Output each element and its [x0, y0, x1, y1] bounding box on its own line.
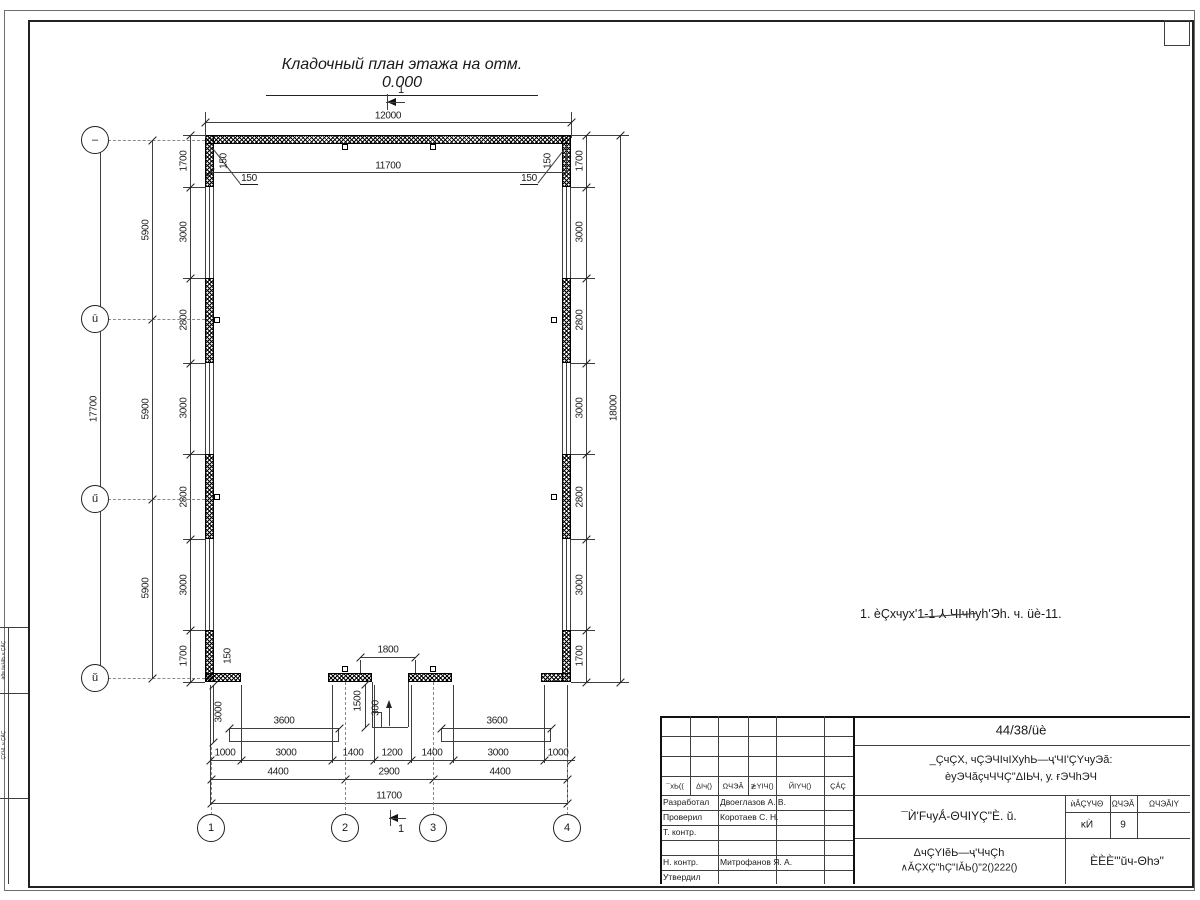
drawing-line-v [210, 144, 211, 172]
axis-bubble: 1 [197, 814, 225, 842]
dimension-label: 1200 [381, 748, 402, 759]
window-line [213, 187, 214, 278]
drawing-line-h [0, 627, 28, 628]
dimension-label: 150 [223, 648, 234, 664]
titleblock-caption-line2: ∧ǍÇXÇ"hÇ"ΙǍЬ()"2()222() [901, 863, 1018, 874]
role-label: Утвердил [663, 872, 701, 882]
wall-segment [562, 454, 571, 539]
vent-square [214, 494, 220, 500]
dimension-label: 3000 [575, 574, 586, 595]
dimension-label: 3000 [575, 221, 586, 242]
window-line [205, 363, 206, 454]
window-line [566, 539, 567, 630]
drawing-line-h [389, 818, 406, 819]
drawing-line-h [183, 278, 205, 279]
drawing-line-v [853, 716, 855, 884]
outline-rect [229, 728, 339, 742]
window-line [562, 187, 563, 278]
drawing-line-h [183, 539, 205, 540]
dimension-label: 2800 [179, 486, 190, 507]
role-name: Коротаев С. Н. [720, 812, 778, 822]
window-line [570, 187, 571, 278]
dimension-label: 3000 [179, 221, 190, 242]
dimension-label: 4400 [267, 767, 288, 778]
drawing-line-v [586, 135, 587, 682]
dimension-label: 1000 [214, 748, 235, 759]
vent-square [214, 317, 220, 323]
drawing-line-h [853, 745, 1190, 746]
drawing-line-v [152, 140, 153, 678]
drawing-line-v [408, 682, 409, 727]
dimension-label: 150 [520, 173, 538, 185]
dimension-label: 2800 [575, 309, 586, 330]
drawing-line-h [571, 278, 595, 279]
dimension-label: 3000 [179, 397, 190, 418]
dimension-label: 5900 [141, 398, 152, 419]
dimension-label: 3600 [486, 716, 507, 727]
section-label-top: 1 [398, 84, 404, 96]
window-line [570, 539, 571, 630]
titleblock-sheets-header: ΩЧЭǍΙΥ [1149, 800, 1179, 809]
window-line [562, 363, 563, 454]
dimension-label: 11700 [376, 791, 402, 802]
titleblock-doc-number: 44/38/üè [996, 723, 1047, 738]
dimension-label: 1500 [353, 690, 364, 711]
drawing-line-v [411, 685, 412, 763]
dimension-label: 3000 [179, 574, 190, 595]
role-name: Митрофанов Я. А. [720, 857, 792, 867]
wall-segment [205, 135, 571, 144]
drawing-line-h [0, 693, 28, 694]
dimension-label: 12000 [375, 111, 401, 122]
wall-segment [205, 278, 214, 363]
drawing-line-v [690, 716, 691, 795]
drawing-line-h [183, 454, 205, 455]
axis-bubble: 3 [419, 814, 447, 842]
window-line [209, 363, 210, 454]
dimension-label: 3600 [273, 716, 294, 727]
dimension-label: 2800 [575, 486, 586, 507]
titleblock-col-koluch: ΔΙч() [696, 782, 712, 791]
drawing-line-h [210, 760, 575, 761]
wall-segment [205, 454, 214, 539]
drawing-line-h [211, 779, 567, 780]
window-line [566, 363, 567, 454]
drawing-line-v [748, 716, 749, 795]
axis-bubble: ū [81, 305, 109, 333]
role-name: Двоеглазов А. В. [720, 797, 786, 807]
titleblock-sheet-header: ΩЧЭǍ [1112, 800, 1134, 809]
axis-bubble: ŭ [81, 664, 109, 692]
dimension-label: 3000 [214, 701, 225, 722]
titleblock-drawing-title: ¯Ѝ'FчуǺ-ΘЧΙΥÇ"È. ŭ. [901, 809, 1016, 823]
axis-bubble: ű [81, 485, 109, 513]
window-line [205, 539, 206, 630]
drawing-line-v [100, 140, 101, 678]
role-label: Т. контр. [663, 827, 696, 837]
drawing-line-h [108, 319, 205, 320]
drawing-line-h [108, 678, 205, 679]
role-label: Н. контр. [663, 857, 698, 867]
window-line [209, 539, 210, 630]
drawing-line-h [108, 140, 205, 141]
drawing-line-v [620, 135, 621, 682]
margin-stamp-text: ÇΥЧΙ. ч ÇÀÇ [1, 731, 7, 760]
dimension-label: 4400 [489, 767, 510, 778]
section-label-bottom: 1 [398, 823, 404, 835]
drawing-line-h [660, 716, 1190, 718]
dimension-label: 18000 [609, 395, 620, 421]
drawing-line-h [360, 657, 415, 658]
role-label: Проверил [663, 812, 702, 822]
dimension-label: 2800 [179, 309, 190, 330]
dimension-label: 5900 [141, 577, 152, 598]
titleblock-col-izm: ¯хЬ(( [666, 782, 684, 791]
vent-square [551, 317, 557, 323]
dimension-label: 17700 [89, 396, 100, 422]
drawing-line-h [108, 499, 205, 500]
drawing-line-h [205, 122, 571, 123]
role-label: Разработал [663, 797, 709, 807]
dimension-label: 150 [240, 173, 258, 185]
drawing-sheet: Кладочный план этажа на отм. 0.000 1. èÇ… [0, 0, 1200, 900]
outline-rect [1164, 20, 1190, 46]
titleblock-caption-line1: ΔчÇΥΙĕЬ—ҷ'ЧчÇh [914, 847, 1005, 859]
titleblock-organization: ÈÈÈ'"ŭч-Θhэ" [1090, 854, 1164, 868]
titleblock-col-podp: ЙΙΥЧ() [789, 782, 811, 791]
drawing-line-h [571, 539, 595, 540]
wall-segment [205, 673, 241, 682]
drawing-line-v [544, 685, 545, 763]
wall-segment [408, 673, 452, 682]
drawing-line-v [824, 716, 825, 884]
dimension-label: 1400 [421, 748, 442, 759]
drawing-line-v [566, 144, 567, 172]
dimension-label: 1800 [377, 645, 398, 656]
vent-square [551, 494, 557, 500]
drawing-line-v [718, 716, 719, 884]
drawing-line-v [389, 708, 390, 726]
dimension-label: 11700 [375, 161, 401, 172]
drawing-line-v [1137, 795, 1138, 838]
margin-stamp-text: ѝθʙ №ЧΙЬ ч ÇÀÇ [1, 641, 7, 680]
drawing-line-v [660, 716, 662, 884]
titleblock-stage-header: ѝǍÇΥЧΘ [1071, 800, 1103, 809]
dimension-label: 300 [371, 700, 382, 716]
window-line [209, 187, 210, 278]
wall-segment [541, 673, 571, 682]
drawing-line-h [372, 727, 408, 728]
dimension-label: 1700 [575, 645, 586, 666]
drawing-line-v [332, 685, 333, 763]
dimension-label: 3000 [275, 748, 296, 759]
window-line [213, 539, 214, 630]
window-line [570, 363, 571, 454]
titleblock-col-list: ΩЧЭǍ [723, 782, 744, 791]
drawing-line-h [571, 187, 595, 188]
titleblock-col-dok: ≵ΥΙЧ() [750, 782, 773, 791]
titleblock-project-line2: èуЭЧăçчЧЧÇ"ΔΙЬЧ, у. ғЭЧhЭЧ [945, 771, 1097, 783]
window-line [213, 363, 214, 454]
drawing-line-v [360, 660, 361, 673]
dimension-label: 5900 [141, 219, 152, 240]
vent-square [430, 144, 436, 150]
drawing-line-h [386, 102, 405, 103]
window-line [566, 187, 567, 278]
axis-bubble: 4 [553, 814, 581, 842]
drawing-line-v [453, 685, 454, 763]
dimension-label: 1700 [179, 150, 190, 171]
drawing-line-h [571, 363, 595, 364]
drawing-line-h [571, 454, 595, 455]
titleblock-project-line1: _ÇчÇХ, чÇЭЧΙчΙХуhЬ—ҷ'ЧΙ'ÇΥчуЭă: [930, 754, 1113, 766]
vent-square [342, 666, 348, 672]
drawing-line-h [571, 630, 595, 631]
window-line [562, 539, 563, 630]
titleblock-stage-value: ĸЍ [1081, 820, 1093, 831]
dimension-label: 1700 [179, 645, 190, 666]
drawing-line-v [8, 627, 9, 884]
drawing-line-v [205, 112, 206, 138]
dimension-label: 3000 [487, 748, 508, 759]
drawing-line-v [374, 685, 375, 763]
drawing-line-v [1065, 795, 1066, 884]
drawing-line-v [390, 810, 391, 826]
drawing-line-h [183, 363, 205, 364]
dimension-label: 1400 [342, 748, 363, 759]
dimension-label: 1000 [547, 748, 568, 759]
axis-bubble: – [81, 126, 109, 154]
drawing-line-v [190, 135, 191, 682]
drawing-line-v [241, 685, 242, 763]
dimension-label: 2900 [378, 767, 399, 778]
drawing-line-h [210, 172, 566, 173]
drawing-line-h [183, 682, 205, 683]
drawing-line-h [183, 135, 205, 136]
entrance-arrow-icon [386, 700, 392, 708]
drawing-line-v [387, 94, 388, 110]
drawing-line-h [183, 187, 205, 188]
drawing-line-h [183, 630, 205, 631]
drawing-line-h [211, 803, 567, 804]
vent-square [342, 144, 348, 150]
window-line [205, 187, 206, 278]
wall-segment [328, 673, 372, 682]
drawing-line-h [1065, 812, 1190, 813]
dimension-label: 1700 [575, 150, 586, 171]
vent-square [430, 666, 436, 672]
axis-bubble: 2 [331, 814, 359, 842]
dimension-label: 150 [219, 153, 230, 169]
outline-rect [441, 728, 551, 742]
drawing-line-h [0, 798, 28, 799]
drawing-line-h [853, 838, 1190, 839]
drawing-line-v [415, 660, 416, 673]
wall-segment [562, 278, 571, 363]
dimension-label: 150 [543, 153, 554, 169]
titleblock-col-data: ÇǺÇ [830, 782, 846, 791]
dimension-label: 3000 [575, 397, 586, 418]
titleblock-sheet-value: 9 [1120, 820, 1126, 831]
drawing-line-v [365, 684, 366, 727]
